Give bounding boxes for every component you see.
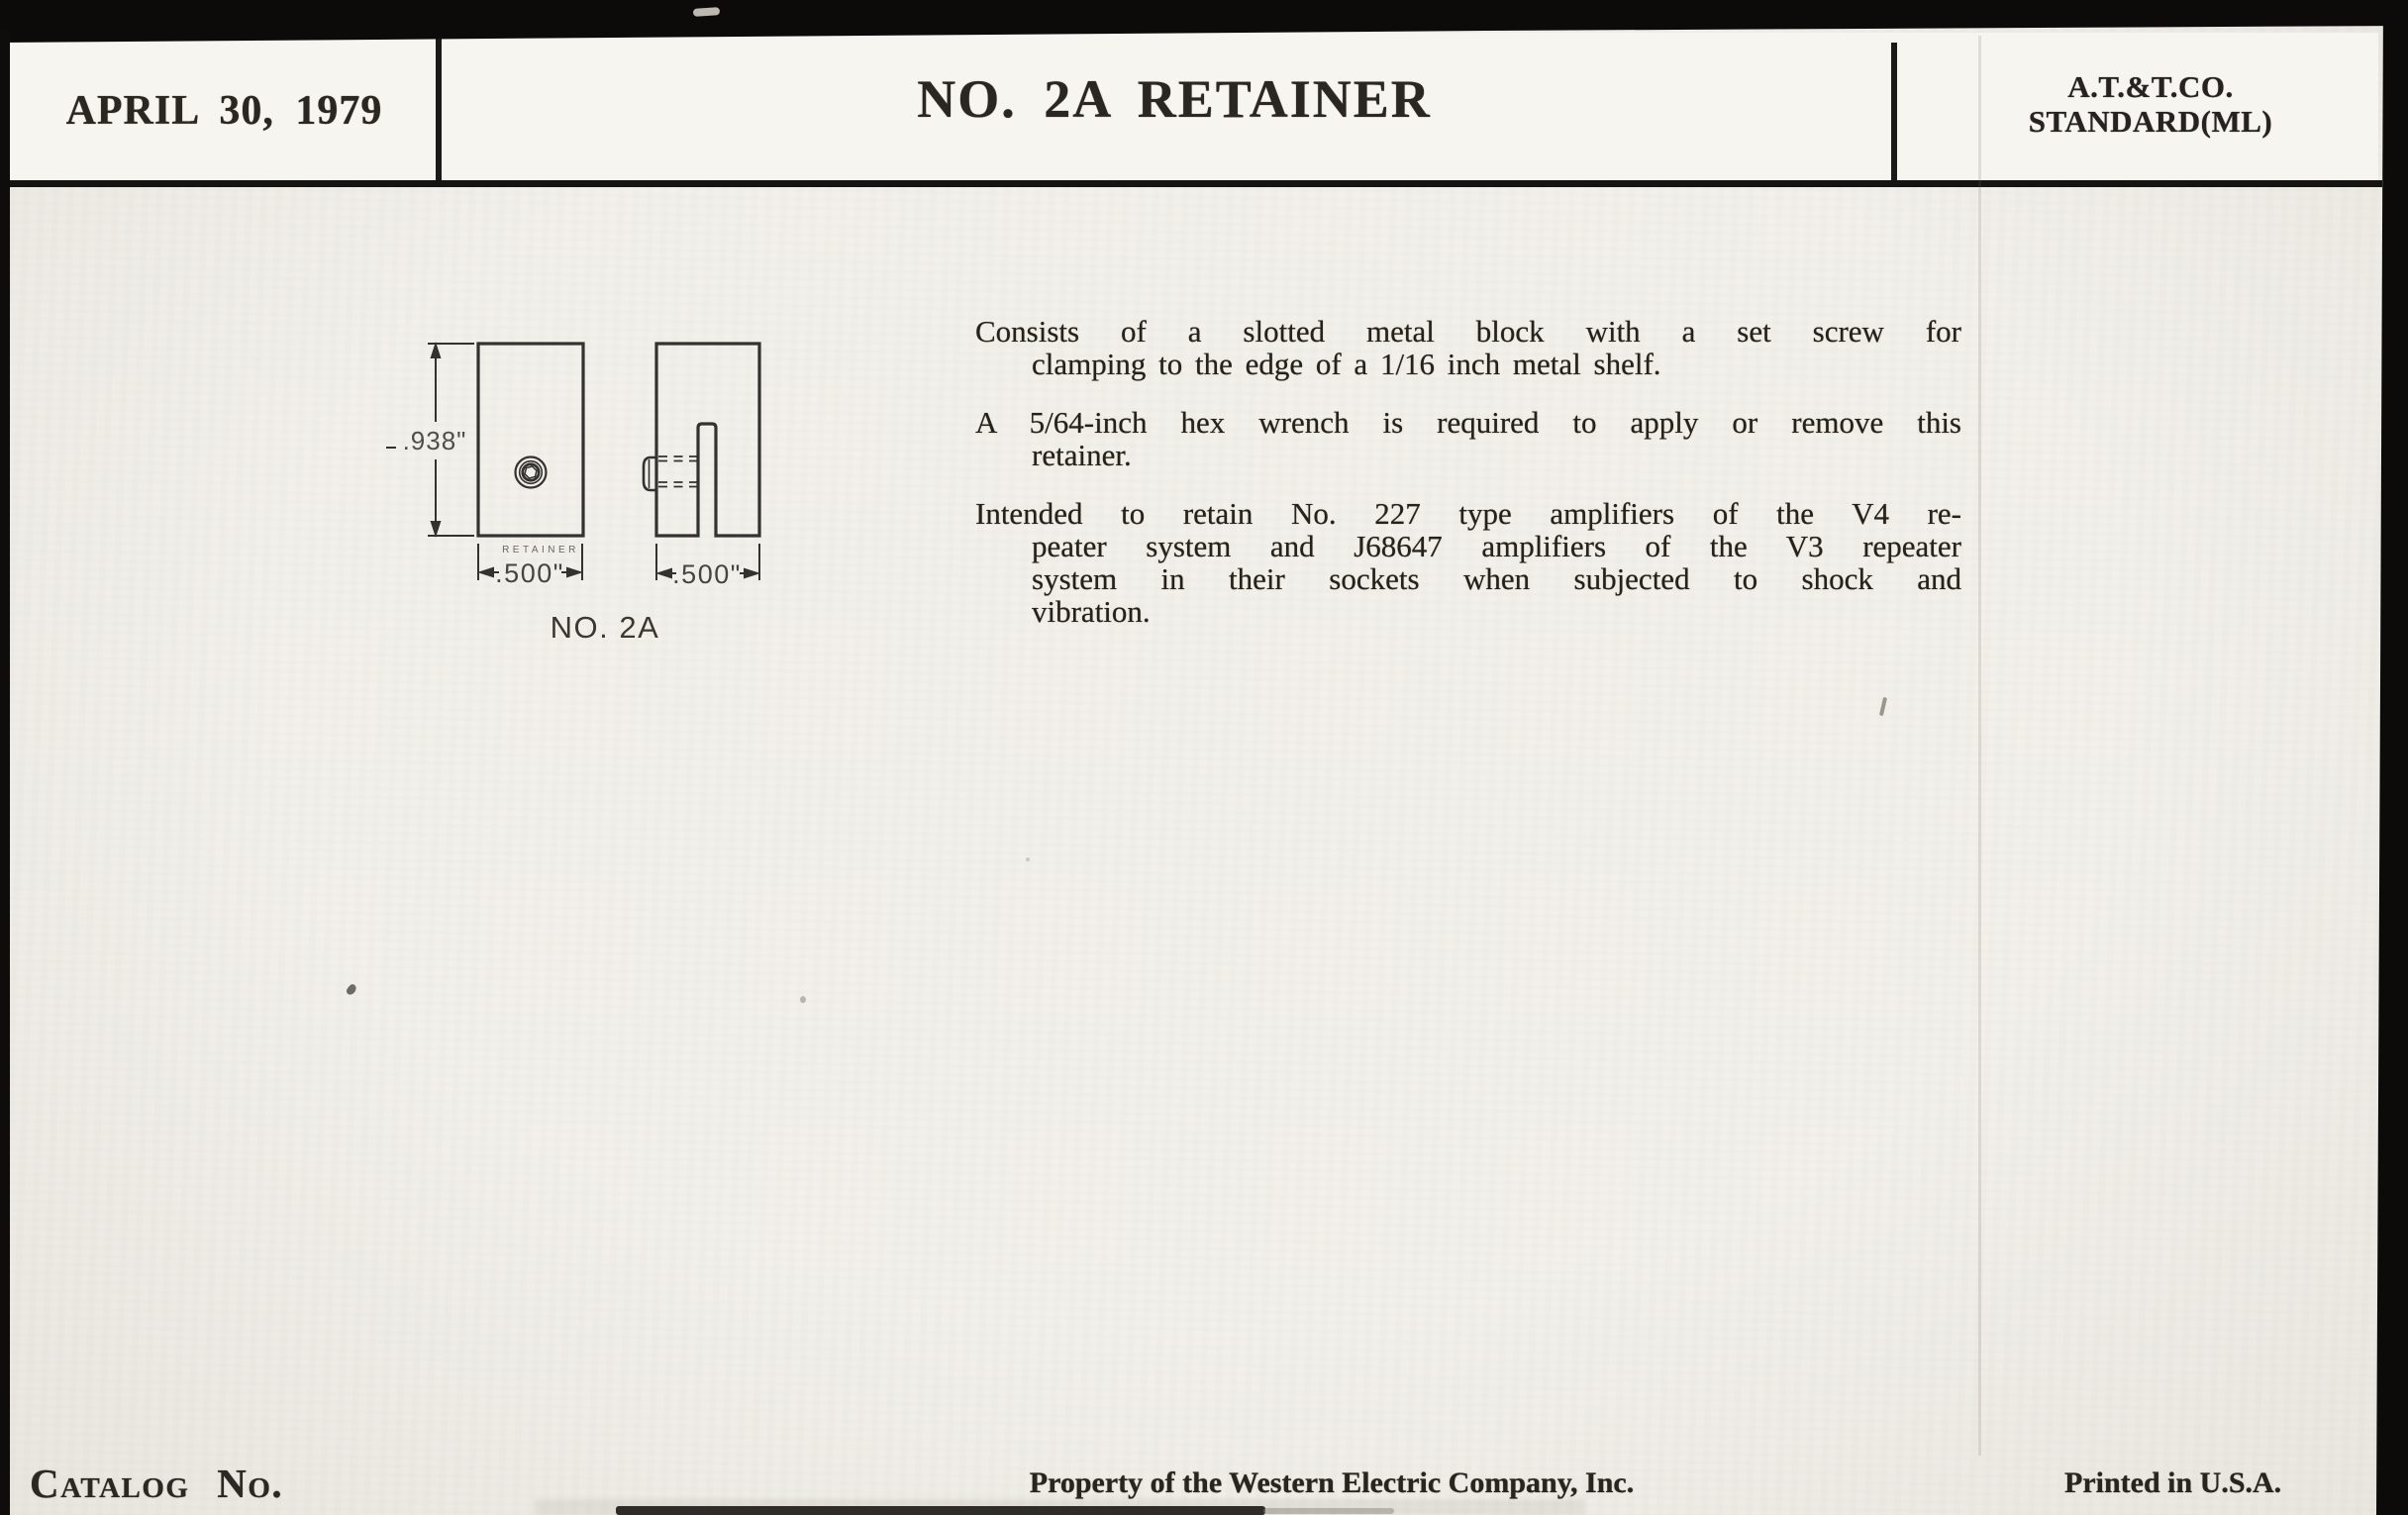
printed-notice: Printed in U.S.A. [2064, 1467, 2281, 1499]
front-width-dim-label: .500" [495, 558, 564, 588]
paragraph-3: Intended to retain No. 227 type amplifie… [975, 497, 1961, 628]
height-dim-label: .938" [403, 426, 467, 455]
scan-border-bottom [616, 1506, 1265, 1515]
scan-speck [800, 996, 806, 1003]
property-notice: Property of the Western Electric Company… [951, 1467, 1713, 1499]
scanned-catalog-page: APRIL 30, 1979 NO. 2A RETAINER A.T.&T.CO… [0, 0, 2408, 1515]
page-title: NO. 2A RETAINER [439, 75, 1892, 123]
part-stamp-label: RETAINER [502, 545, 579, 555]
header-divider-right [1891, 43, 1897, 183]
technical-drawing: .938" RETAINER .500" [374, 285, 853, 681]
issue-date: APRIL 30, 1979 [10, 89, 439, 133]
paper-crease [1978, 36, 1981, 1456]
scan-border-bottom-tail [1263, 1508, 1394, 1514]
text-line: system in their sockets when subjected t… [975, 562, 1961, 595]
text-line: Consists of a slotted metal block with a… [975, 315, 1961, 348]
standard-line-1: A.T.&T.CO. [1925, 69, 2376, 104]
scan-border-left [0, 30, 10, 1515]
side-width-dimension: .500" [655, 544, 760, 589]
text-line: vibration. [975, 595, 1961, 628]
paragraph-2: A 5/64-inch hex wrench is required to ap… [975, 406, 1961, 471]
text-line: Intended to retain No. 227 type amplifie… [975, 497, 1961, 530]
front-view [478, 344, 583, 536]
scan-notch [693, 7, 720, 17]
side-width-dim-label: .500" [672, 559, 742, 589]
text-line: peater system and J68647 amplifiers of t… [975, 530, 1961, 562]
header-divider-left [436, 37, 442, 183]
figure-caption: NO. 2A [551, 610, 660, 645]
catalog-number-label: Catalog No. [30, 1463, 283, 1504]
scan-speck [1026, 858, 1030, 861]
scan-border-right [2376, 0, 2408, 1515]
set-screw-icon [516, 457, 547, 488]
text-line: A 5/64-inch hex wrench is required to ap… [975, 406, 1961, 439]
standard-designation: A.T.&T.CO. STANDARD(ML) [1897, 69, 2376, 139]
header-rule [5, 180, 2382, 187]
paper-texture [0, 0, 2408, 1515]
hidden-screw-lines [658, 456, 697, 487]
text-line: clamping to the edge of a 1/16 inch meta… [975, 348, 1961, 380]
standard-line-2: STANDARD(ML) [1925, 104, 2376, 139]
scan-speck [345, 983, 357, 997]
paragraph-1: Consists of a slotted metal block with a… [975, 315, 1961, 380]
side-view [644, 344, 759, 536]
height-dimension: .938" [386, 342, 474, 538]
description-text: Consists of a slotted metal block with a… [975, 315, 1961, 628]
scan-speck [1879, 697, 1887, 716]
screw-head-profile [644, 457, 656, 490]
text-line: retainer. [975, 439, 1961, 471]
